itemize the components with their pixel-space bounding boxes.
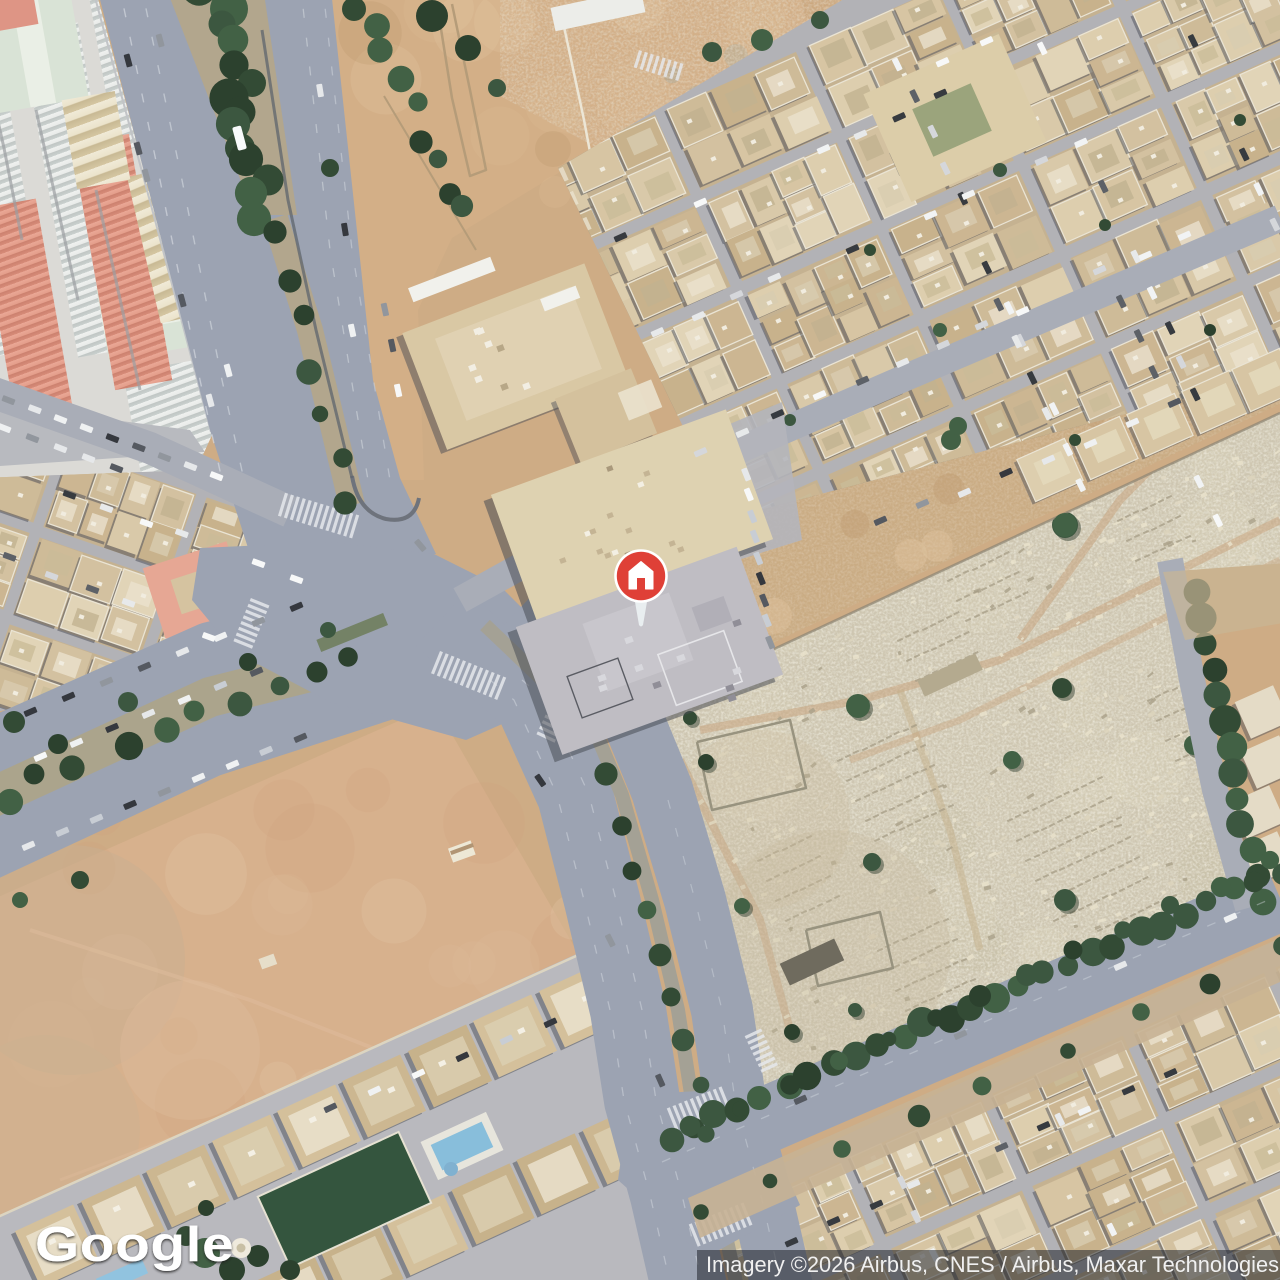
svg-text:Imagery ©2026 Airbus, CNES / A: Imagery ©2026 Airbus, CNES / Airbus, Max…: [706, 1252, 1279, 1277]
svg-text:Google: Google: [35, 1218, 234, 1272]
